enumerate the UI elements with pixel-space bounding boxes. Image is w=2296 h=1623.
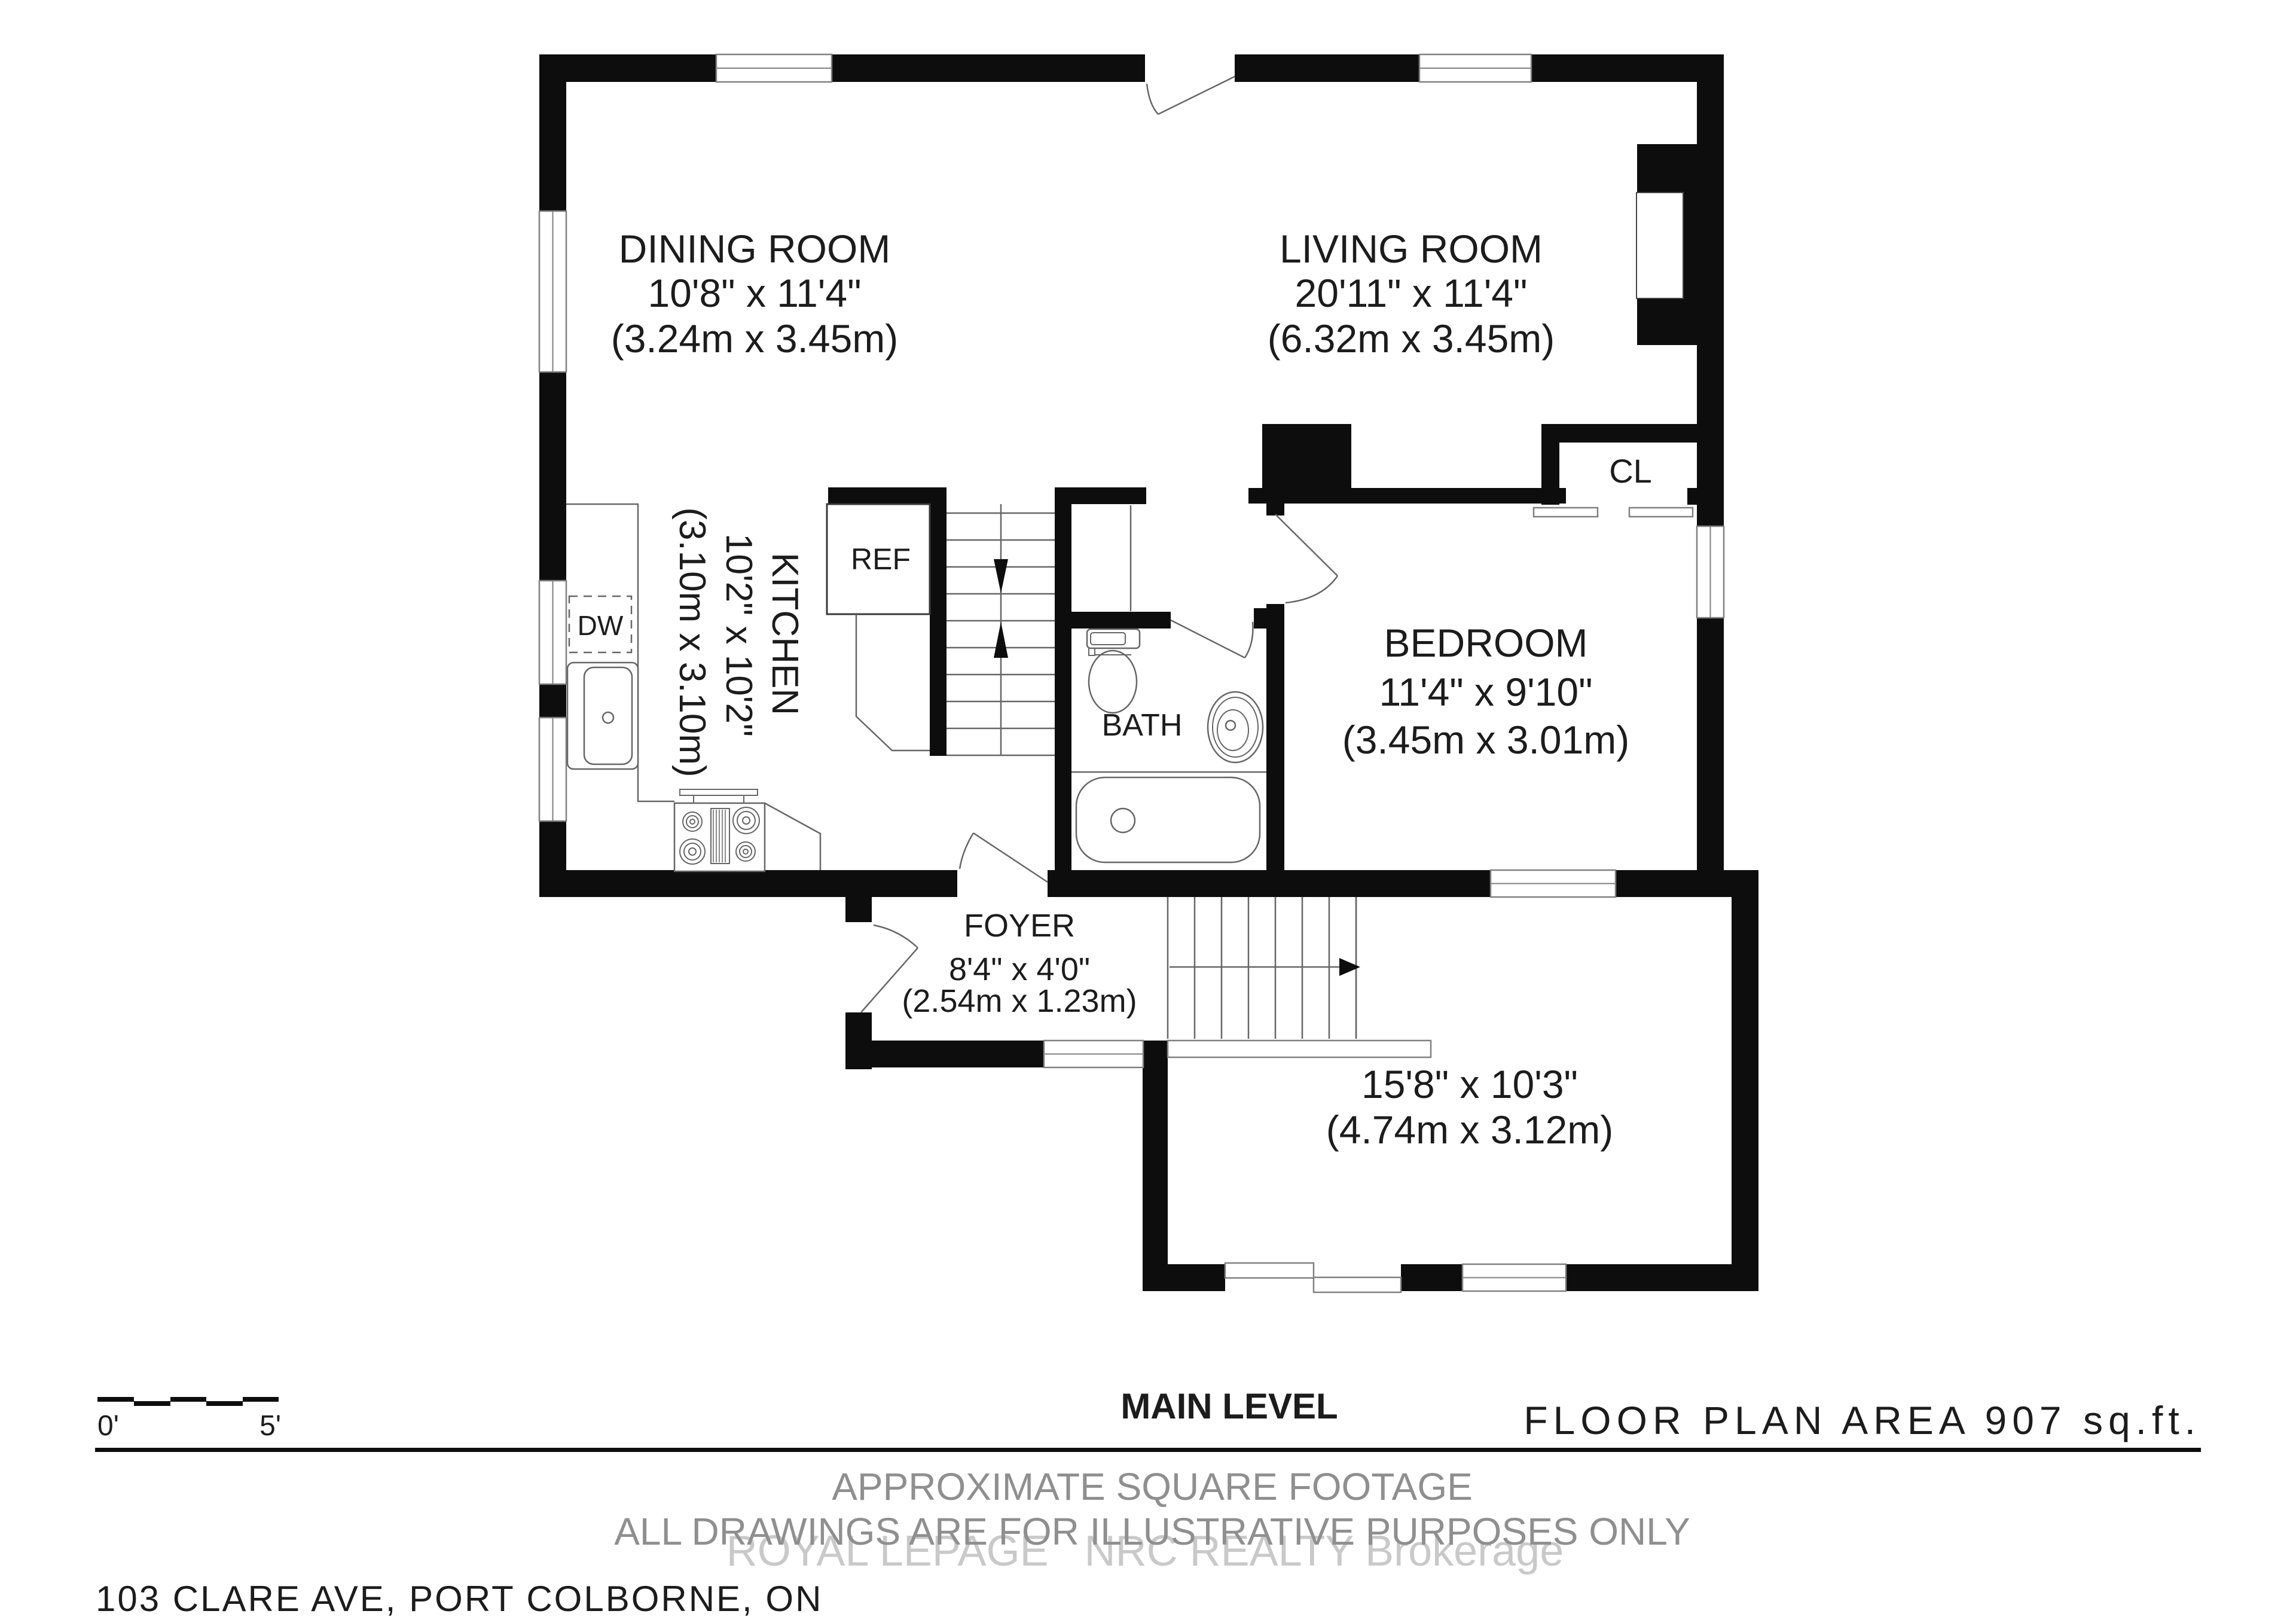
svg-text:(3.10m x 3.10m): (3.10m x 3.10m) xyxy=(671,507,713,777)
svg-text:(3.24m x 3.45m): (3.24m x 3.45m) xyxy=(611,316,899,361)
svg-text:APPROXIMATE SQUARE FOOTAGE: APPROXIMATE SQUARE FOOTAGE xyxy=(832,1465,1473,1508)
svg-text:11'4" x 9'10": 11'4" x 9'10" xyxy=(1379,670,1592,714)
svg-text:REF: REF xyxy=(851,542,911,576)
svg-text:BATH: BATH xyxy=(1102,708,1183,743)
svg-text:FOYER: FOYER xyxy=(964,908,1075,944)
svg-text:5': 5' xyxy=(259,1410,281,1442)
svg-text:(3.45m x 3.01m): (3.45m x 3.01m) xyxy=(1342,718,1630,762)
svg-text:0': 0' xyxy=(97,1410,119,1442)
svg-text:103 CLARE AVE, PORT COLBORNE,: 103 CLARE AVE, PORT COLBORNE, ON xyxy=(96,1579,823,1619)
svg-text:LIVING ROOM: LIVING ROOM xyxy=(1280,227,1543,271)
svg-text:(6.32m x 3.45m): (6.32m x 3.45m) xyxy=(1268,316,1555,361)
svg-text:BEDROOM: BEDROOM xyxy=(1384,621,1587,665)
svg-text:KITCHEN: KITCHEN xyxy=(764,553,805,715)
svg-text:MAIN LEVEL: MAIN LEVEL xyxy=(1120,1386,1338,1426)
svg-text:10'2" x 10'2": 10'2" x 10'2" xyxy=(718,533,759,737)
svg-text:15'8" x 10'3": 15'8" x 10'3" xyxy=(1361,1062,1578,1106)
svg-text:DW: DW xyxy=(578,610,624,641)
svg-text:(2.54m x 1.23m): (2.54m x 1.23m) xyxy=(902,983,1137,1019)
svg-text:8'4" x 4'0": 8'4" x 4'0" xyxy=(949,951,1090,987)
svg-text:ALL DRAWINGS ARE FOR ILLUSTRAT: ALL DRAWINGS ARE FOR ILLUSTRATIVE PURPOS… xyxy=(614,1510,1690,1553)
svg-text:FLOOR PLAN AREA 907 sq.ft.: FLOOR PLAN AREA 907 sq.ft. xyxy=(1523,1398,2201,1442)
svg-text:DINING ROOM: DINING ROOM xyxy=(619,227,891,271)
svg-text:(4.74m x 3.12m): (4.74m x 3.12m) xyxy=(1326,1108,1614,1152)
svg-text:10'8" x 11'4": 10'8" x 11'4" xyxy=(648,271,861,315)
svg-text:20'11" x 11'4": 20'11" x 11'4" xyxy=(1295,271,1528,315)
svg-text:CL: CL xyxy=(1609,452,1652,490)
